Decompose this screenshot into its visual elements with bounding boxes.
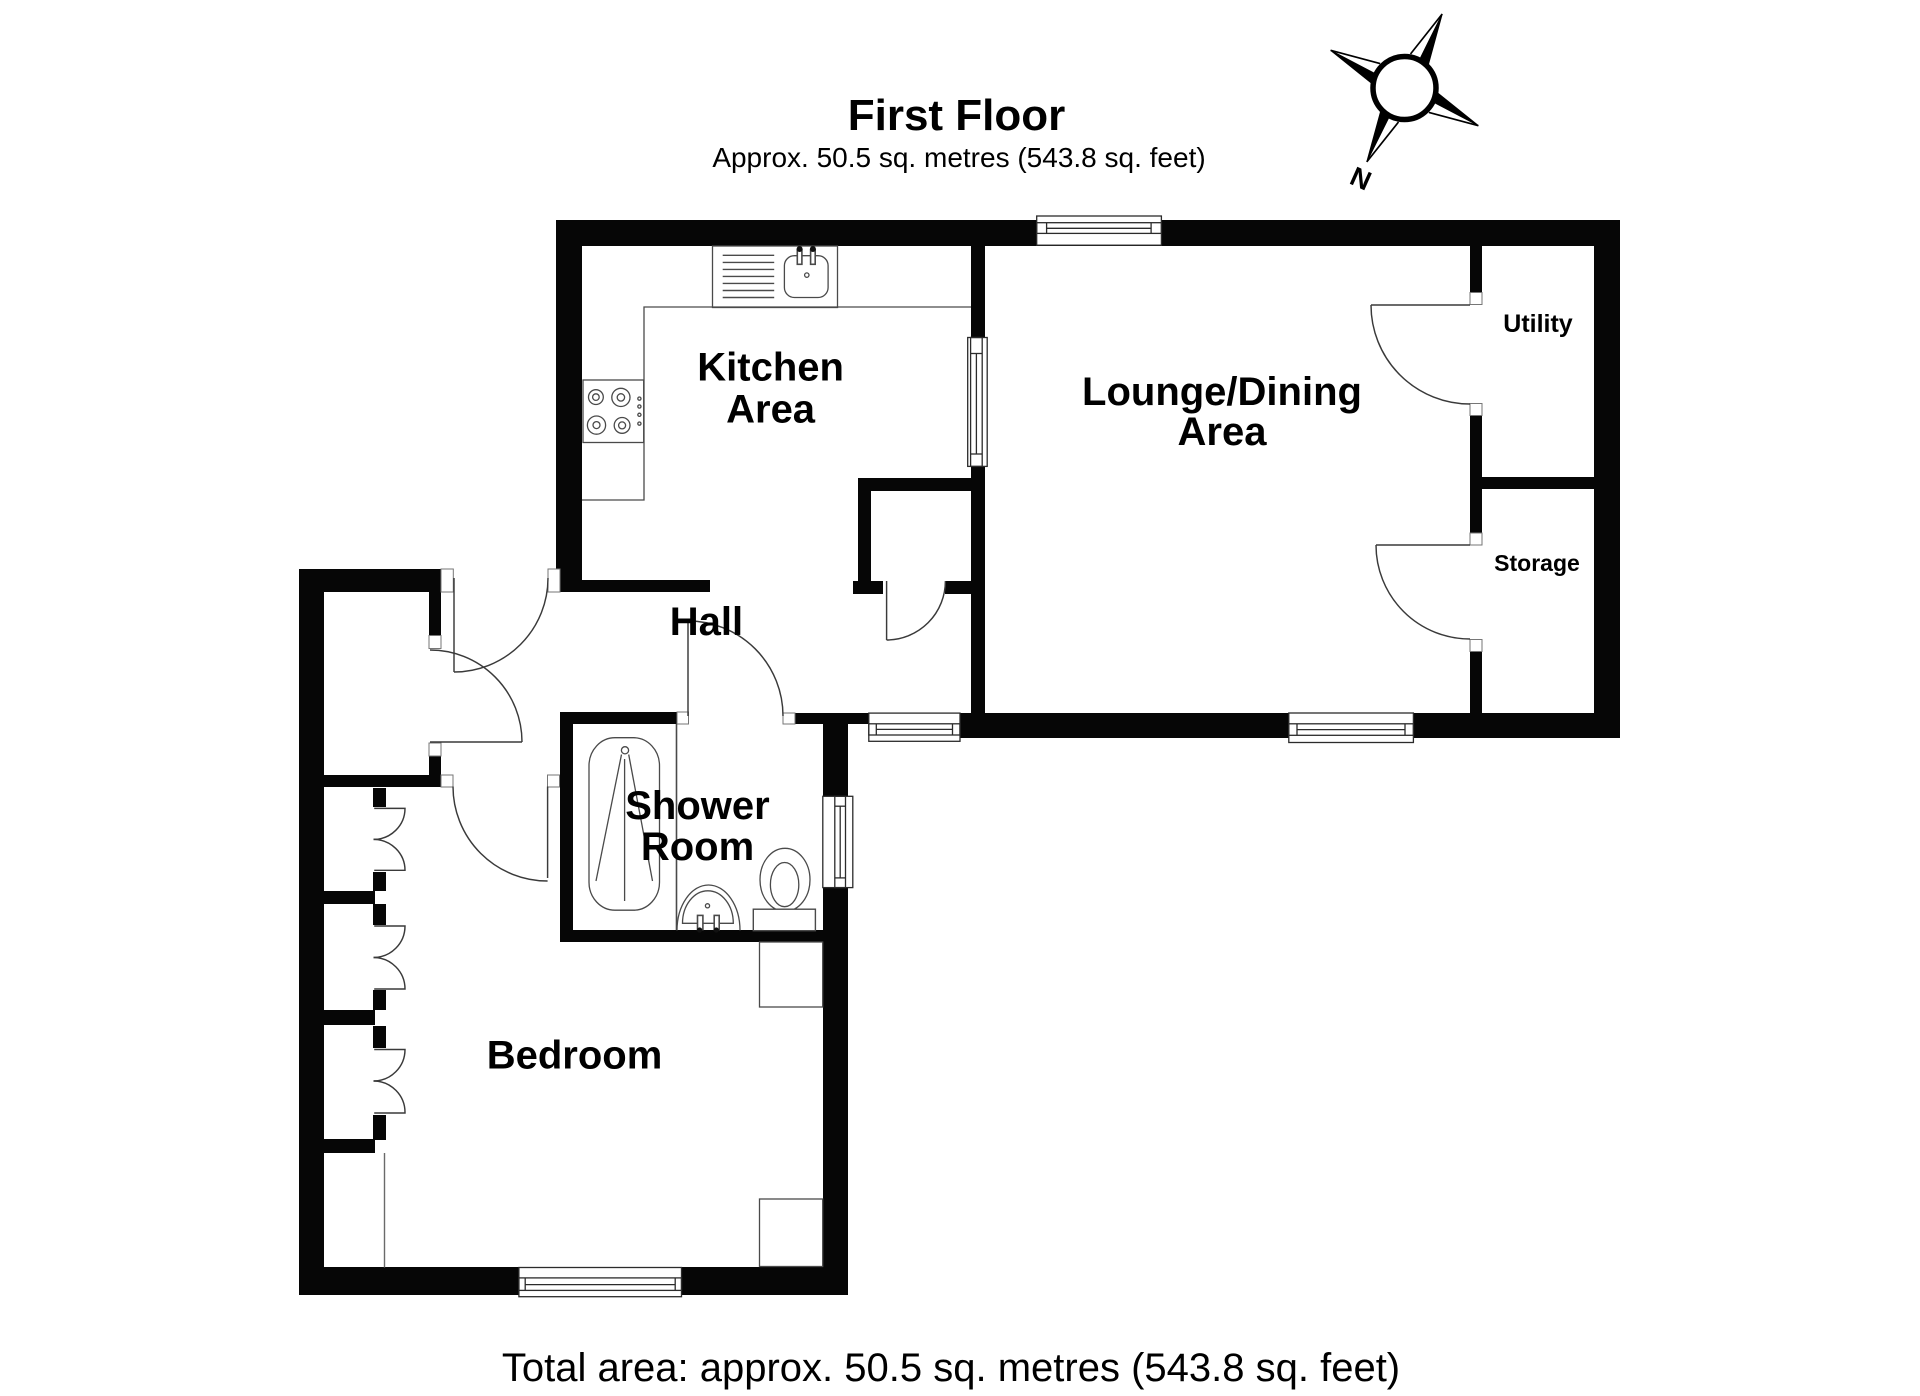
svg-text:Storage: Storage [1494,550,1580,576]
svg-text:Kitchen: Kitchen [697,346,844,390]
svg-text:Area: Area [1178,410,1268,454]
svg-text:Lounge/Dining: Lounge/Dining [1082,370,1362,414]
svg-text:Bedroom: Bedroom [487,1034,663,1078]
svg-text:First Floor: First Floor [848,91,1066,140]
svg-text:Area: Area [726,388,816,432]
svg-text:Room: Room [641,825,754,869]
svg-text:Utility: Utility [1503,310,1573,338]
svg-text:Total area: approx. 50.5 sq. m: Total area: approx. 50.5 sq. metres (543… [502,1346,1400,1390]
svg-text:Hall: Hall [670,600,743,644]
svg-text:Approx. 50.5 sq. metres (543.8: Approx. 50.5 sq. metres (543.8 sq. feet) [712,142,1205,173]
svg-text:Shower: Shower [625,784,769,828]
